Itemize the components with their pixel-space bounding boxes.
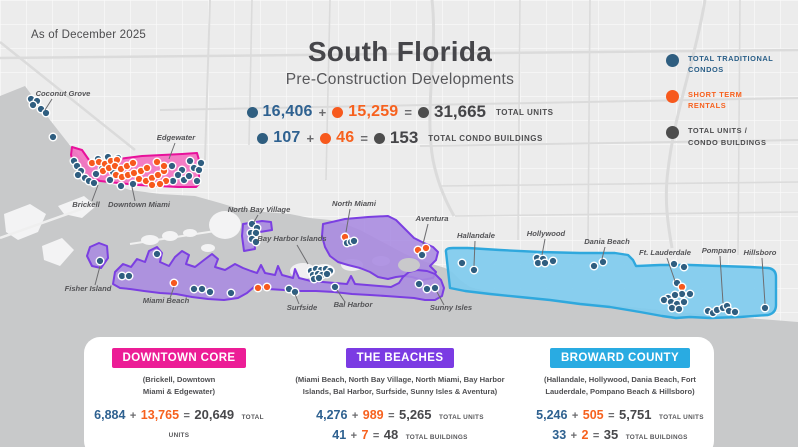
short-term-rental-dot [156, 180, 164, 188]
map-label-edgewater: Edgewater [157, 133, 196, 142]
total-buildings-label: TOTAL CONDO BUILDINGS [428, 134, 543, 143]
map-label-aventura: Aventura [415, 214, 449, 223]
map-label-downtown-miami: Downtown Miami [108, 200, 171, 209]
traditional-condo-dot [423, 285, 431, 293]
card-buildings-line: 33 + 2 = 35 TOTAL BUILDINGS [526, 426, 714, 444]
card-buildings-line: 33 + 37 = 70 TOTAL BUILDINGS [84, 444, 274, 447]
blue-dot-icon [247, 107, 258, 118]
map-label-pompano: Pompano [702, 246, 737, 255]
traditional-condo-dot [470, 266, 478, 274]
plus-sign: + [318, 105, 328, 120]
card-the-beaches: THE BEACHES (Miami Beach, North Bay Vill… [274, 337, 526, 447]
traditional-condo-dot [125, 272, 133, 280]
orange-dot-icon [332, 107, 343, 118]
page-subtitle: Pre-Construction Developments [199, 71, 601, 89]
map-label-coconut-grove: Coconut Grove [36, 89, 92, 98]
traditional-condo-dot [323, 270, 331, 278]
traditional-condo-dot [350, 237, 358, 245]
legend-label: CONDOS [688, 65, 724, 74]
legend-item-short-term: SHORT TERM RENTALS [666, 89, 773, 111]
traditional-condo-dot [418, 251, 426, 259]
traditional-condo-dot [198, 285, 206, 293]
traditional-condo-dot [599, 258, 607, 266]
traditional-condo-dot [541, 259, 549, 267]
traditional-condo-dot [186, 157, 194, 165]
dark-dot-icon [374, 133, 385, 144]
plus-sign: + [306, 131, 316, 146]
short-term-rental-dot [170, 279, 178, 287]
traditional-condo-dot [415, 280, 423, 288]
legend-label: CONDO BUILDINGS [688, 138, 766, 147]
map-label-hollywood: Hollywood [527, 229, 566, 238]
traditional-condo-dot [431, 284, 439, 292]
traditional-condo-dot [331, 283, 339, 291]
total-buildings-value: 153 [390, 128, 418, 148]
dark-dot-icon [666, 126, 679, 139]
short-term-rental-dot [143, 164, 151, 172]
as-of-date: As of December 2025 [31, 29, 146, 41]
card-downtown-core: DOWNTOWN CORE (Brickell, Downtown Miami … [84, 337, 274, 447]
card-units-line: 6,884 + 13,765 = 20,649 TOTAL UNITS [84, 406, 274, 442]
map-label-fisher-island: Fisher Island [65, 284, 112, 293]
traditional-condo-dot [680, 298, 688, 306]
str-units-value: 15,259 [348, 103, 398, 121]
map-label-bay-harbor-islands: Bay Harbor Islands [257, 234, 326, 243]
traditional-condo-dot [590, 262, 598, 270]
map-label-miami-beach: Miami Beach [143, 296, 190, 305]
traditional-condo-dot [686, 290, 694, 298]
map-label-bal-harbor: Bal Harbor [334, 300, 374, 309]
traditional-condo-dot [761, 304, 769, 312]
total-units-value: 31,665 [434, 102, 486, 122]
card-broward-county: BROWARD COUNTY (Hallandale, Hollywood, D… [526, 337, 714, 447]
card-title-badge: DOWNTOWN CORE [112, 348, 247, 368]
card-title-badge: THE BEACHES [346, 348, 455, 368]
traditional-condo-dot [190, 285, 198, 293]
card-subtitle: (Brickell, Downtown Miami & Edgewater) [84, 374, 274, 398]
traditional-condo-dot [670, 260, 678, 268]
traditional-condo-dot [96, 257, 104, 265]
orange-dot-icon [666, 90, 679, 103]
short-term-rental-dot [153, 158, 161, 166]
map-label-hallandale: Hallandale [457, 231, 496, 240]
map-label-surfside: Surfside [287, 303, 318, 312]
summary-panel: DOWNTOWN CORE (Brickell, Downtown Miami … [84, 337, 714, 447]
card-subtitle: (Hallandale, Hollywood, Dania Beach, For… [526, 374, 714, 398]
traditional-condo-dot [458, 259, 466, 267]
traditional-units-value: 16,406 [263, 103, 313, 121]
blue-dot-icon [257, 133, 268, 144]
legend-label: TOTAL TRADITIONAL [688, 54, 773, 63]
legend-label: SHORT TERM [688, 90, 742, 99]
short-term-rental-dot [160, 162, 168, 170]
card-units-line: 4,276 + 989 = 5,265 TOTAL UNITS [274, 406, 526, 424]
traditional-condo-dot [315, 274, 323, 282]
card-units-line: 5,246 + 505 = 5,751 TOTAL UNITS [526, 406, 714, 424]
card-subtitle: (Miami Beach, North Bay Village, North M… [274, 374, 526, 398]
legend-item-traditional: TOTAL TRADITIONAL CONDOS [666, 53, 773, 75]
traditional-condo-dot [168, 162, 176, 170]
legend-item-totals: TOTAL UNITS / CONDO BUILDINGS [666, 125, 773, 147]
total-units-label: TOTAL UNITS [496, 108, 554, 117]
short-term-rental-dot [254, 284, 262, 292]
page-title: South Florida [199, 38, 601, 66]
oleta-gray-patch [398, 258, 420, 272]
headline-stats: 16,406 + 15,259 = 31,665 TOTAL UNITS 107… [199, 102, 601, 148]
short-term-rental-dot [129, 159, 137, 167]
map-label-dania-beach: Dania Beach [584, 237, 630, 246]
short-term-rental-dot [263, 283, 271, 291]
traditional-condo-dot [185, 172, 193, 180]
str-buildings-value: 46 [336, 129, 354, 147]
infographic-poster: Coconut GroveEdgewaterBrickellDowntown M… [0, 0, 798, 447]
traditional-condo-dot [117, 182, 125, 190]
traditional-condo-dot [731, 308, 739, 316]
traditional-condo-dot [680, 263, 688, 271]
map-label-brickell: Brickell [72, 200, 100, 209]
map-label-north-bay-village: North Bay Village [228, 205, 291, 214]
title-block: South Florida Pre-Construction Developme… [199, 38, 601, 148]
traditional-condo-dot [42, 109, 50, 117]
traditional-condo-dot [29, 101, 37, 109]
map-label-north-miami: North Miami [332, 199, 377, 208]
traditional-condo-dot [90, 179, 98, 187]
traditional-condo-dot [153, 250, 161, 258]
short-term-rental-dot [422, 244, 430, 252]
traditional-condo-dot [227, 289, 235, 297]
legend: TOTAL TRADITIONAL CONDOS SHORT TERM RENT… [666, 53, 773, 162]
blue-dot-icon [666, 54, 679, 67]
equals-sign: = [359, 131, 369, 146]
short-term-rental-dot [148, 181, 156, 189]
stat-row-units: 16,406 + 15,259 = 31,665 TOTAL UNITS [199, 102, 601, 122]
traditional-condo-dot [549, 257, 557, 265]
traditional-condo-dot [675, 305, 683, 313]
traditional-buildings-value: 107 [273, 129, 300, 147]
traditional-condo-dot [193, 177, 201, 185]
traditional-condo-dot [49, 133, 57, 141]
stat-row-buildings: 107 + 46 = 153 TOTAL CONDO BUILDINGS [199, 128, 601, 148]
legend-label: TOTAL UNITS / [688, 126, 747, 135]
equals-sign: = [403, 105, 413, 120]
map-label-hillsboro: Hillsboro [744, 248, 777, 257]
legend-label: RENTALS [688, 101, 726, 110]
card-buildings-line: 41 + 7 = 48 TOTAL BUILDINGS [274, 426, 526, 444]
card-title-badge: BROWARD COUNTY [550, 348, 690, 368]
orange-dot-icon [320, 133, 331, 144]
map-label-ft-lauderdale: Ft. Lauderdale [639, 248, 692, 257]
map-label-sunny-isles: Sunny Isles [430, 303, 472, 312]
traditional-condo-dot [197, 159, 205, 167]
traditional-condo-dot [206, 288, 214, 296]
dark-dot-icon [418, 107, 429, 118]
